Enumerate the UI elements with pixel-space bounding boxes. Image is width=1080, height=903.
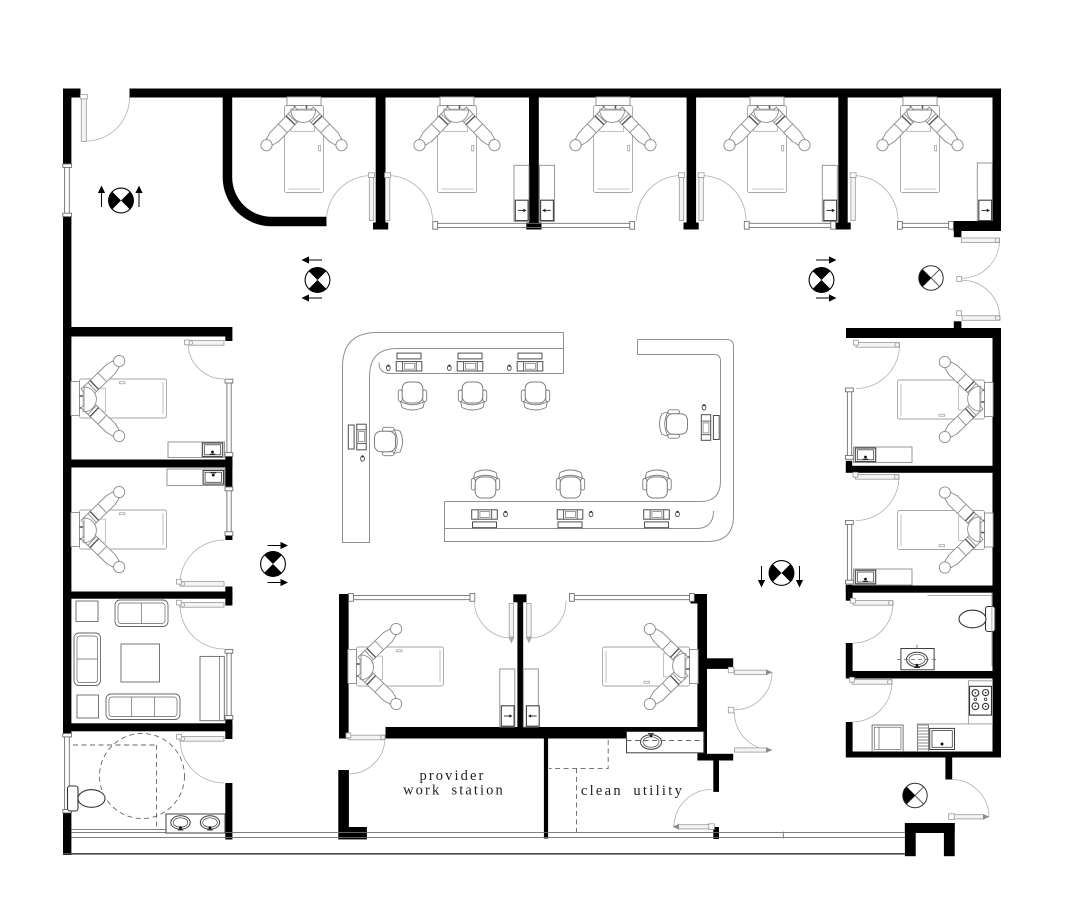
svg-text:clean utility: clean utility [581,783,684,799]
svg-text:work station: work station [403,783,505,799]
